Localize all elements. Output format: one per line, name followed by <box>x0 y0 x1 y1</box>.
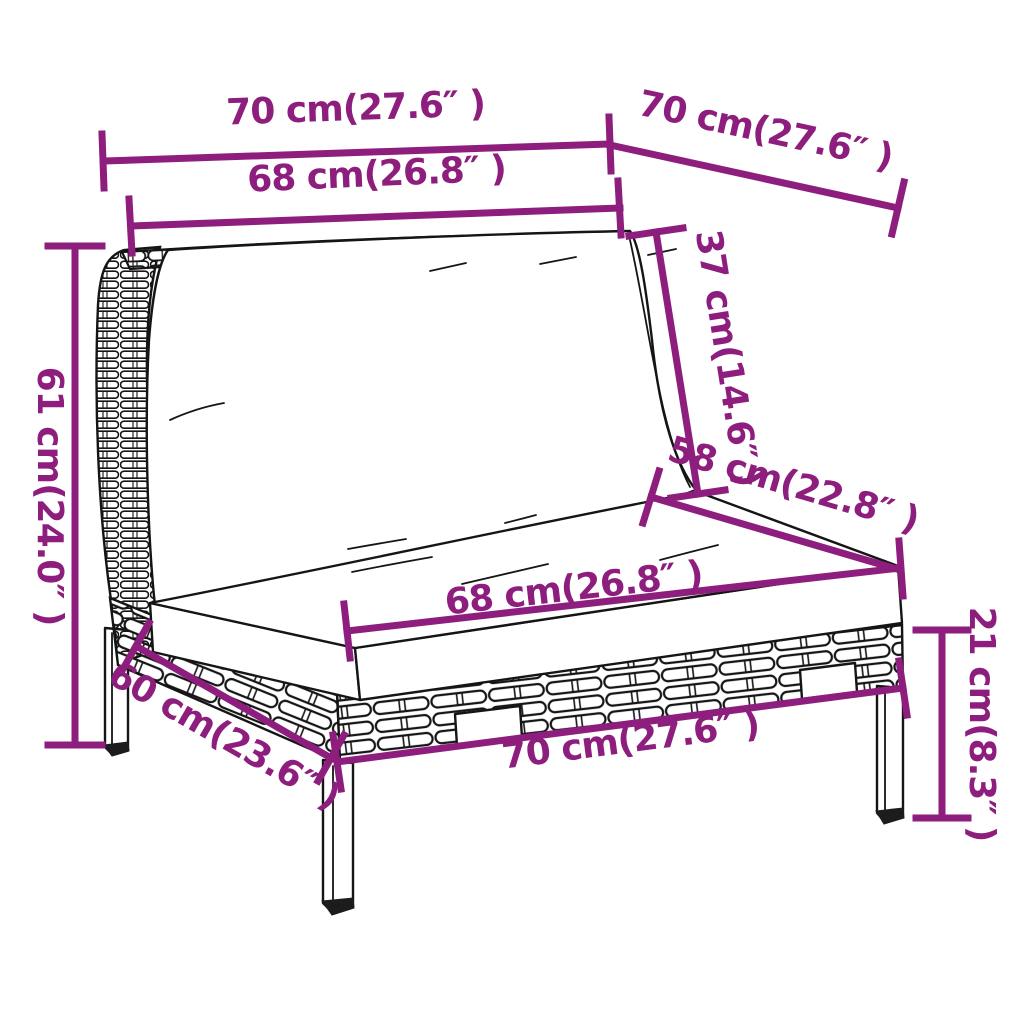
dimension-label-top-width: 70 cm(27.6″ ) <box>226 84 486 134</box>
dimension-label-seat-height: 21 cm(8.3″ ) <box>961 607 1002 842</box>
sofa-line-art <box>97 231 904 915</box>
sofa-leg-front-right <box>876 686 904 824</box>
dimension-label-overall-height: 61 cm(24.0″ ) <box>29 367 70 626</box>
dimension-top-depth: 70 cm(27.6″ ) <box>610 83 904 234</box>
furniture-dimension-diagram: 70 cm(27.6″ ) 70 cm(27.6″ ) 68 cm(26.8″ … <box>0 0 1024 1024</box>
dimension-seat-height: 21 cm(8.3″ ) <box>916 607 1002 842</box>
dimension-overall-height: 61 cm(24.0″ ) <box>29 246 102 745</box>
dimension-diagram-svg: 70 cm(27.6″ ) 70 cm(27.6″ ) 68 cm(26.8″ … <box>0 0 1024 1024</box>
dimension-label-top-depth: 70 cm(27.6″ ) <box>635 83 897 178</box>
